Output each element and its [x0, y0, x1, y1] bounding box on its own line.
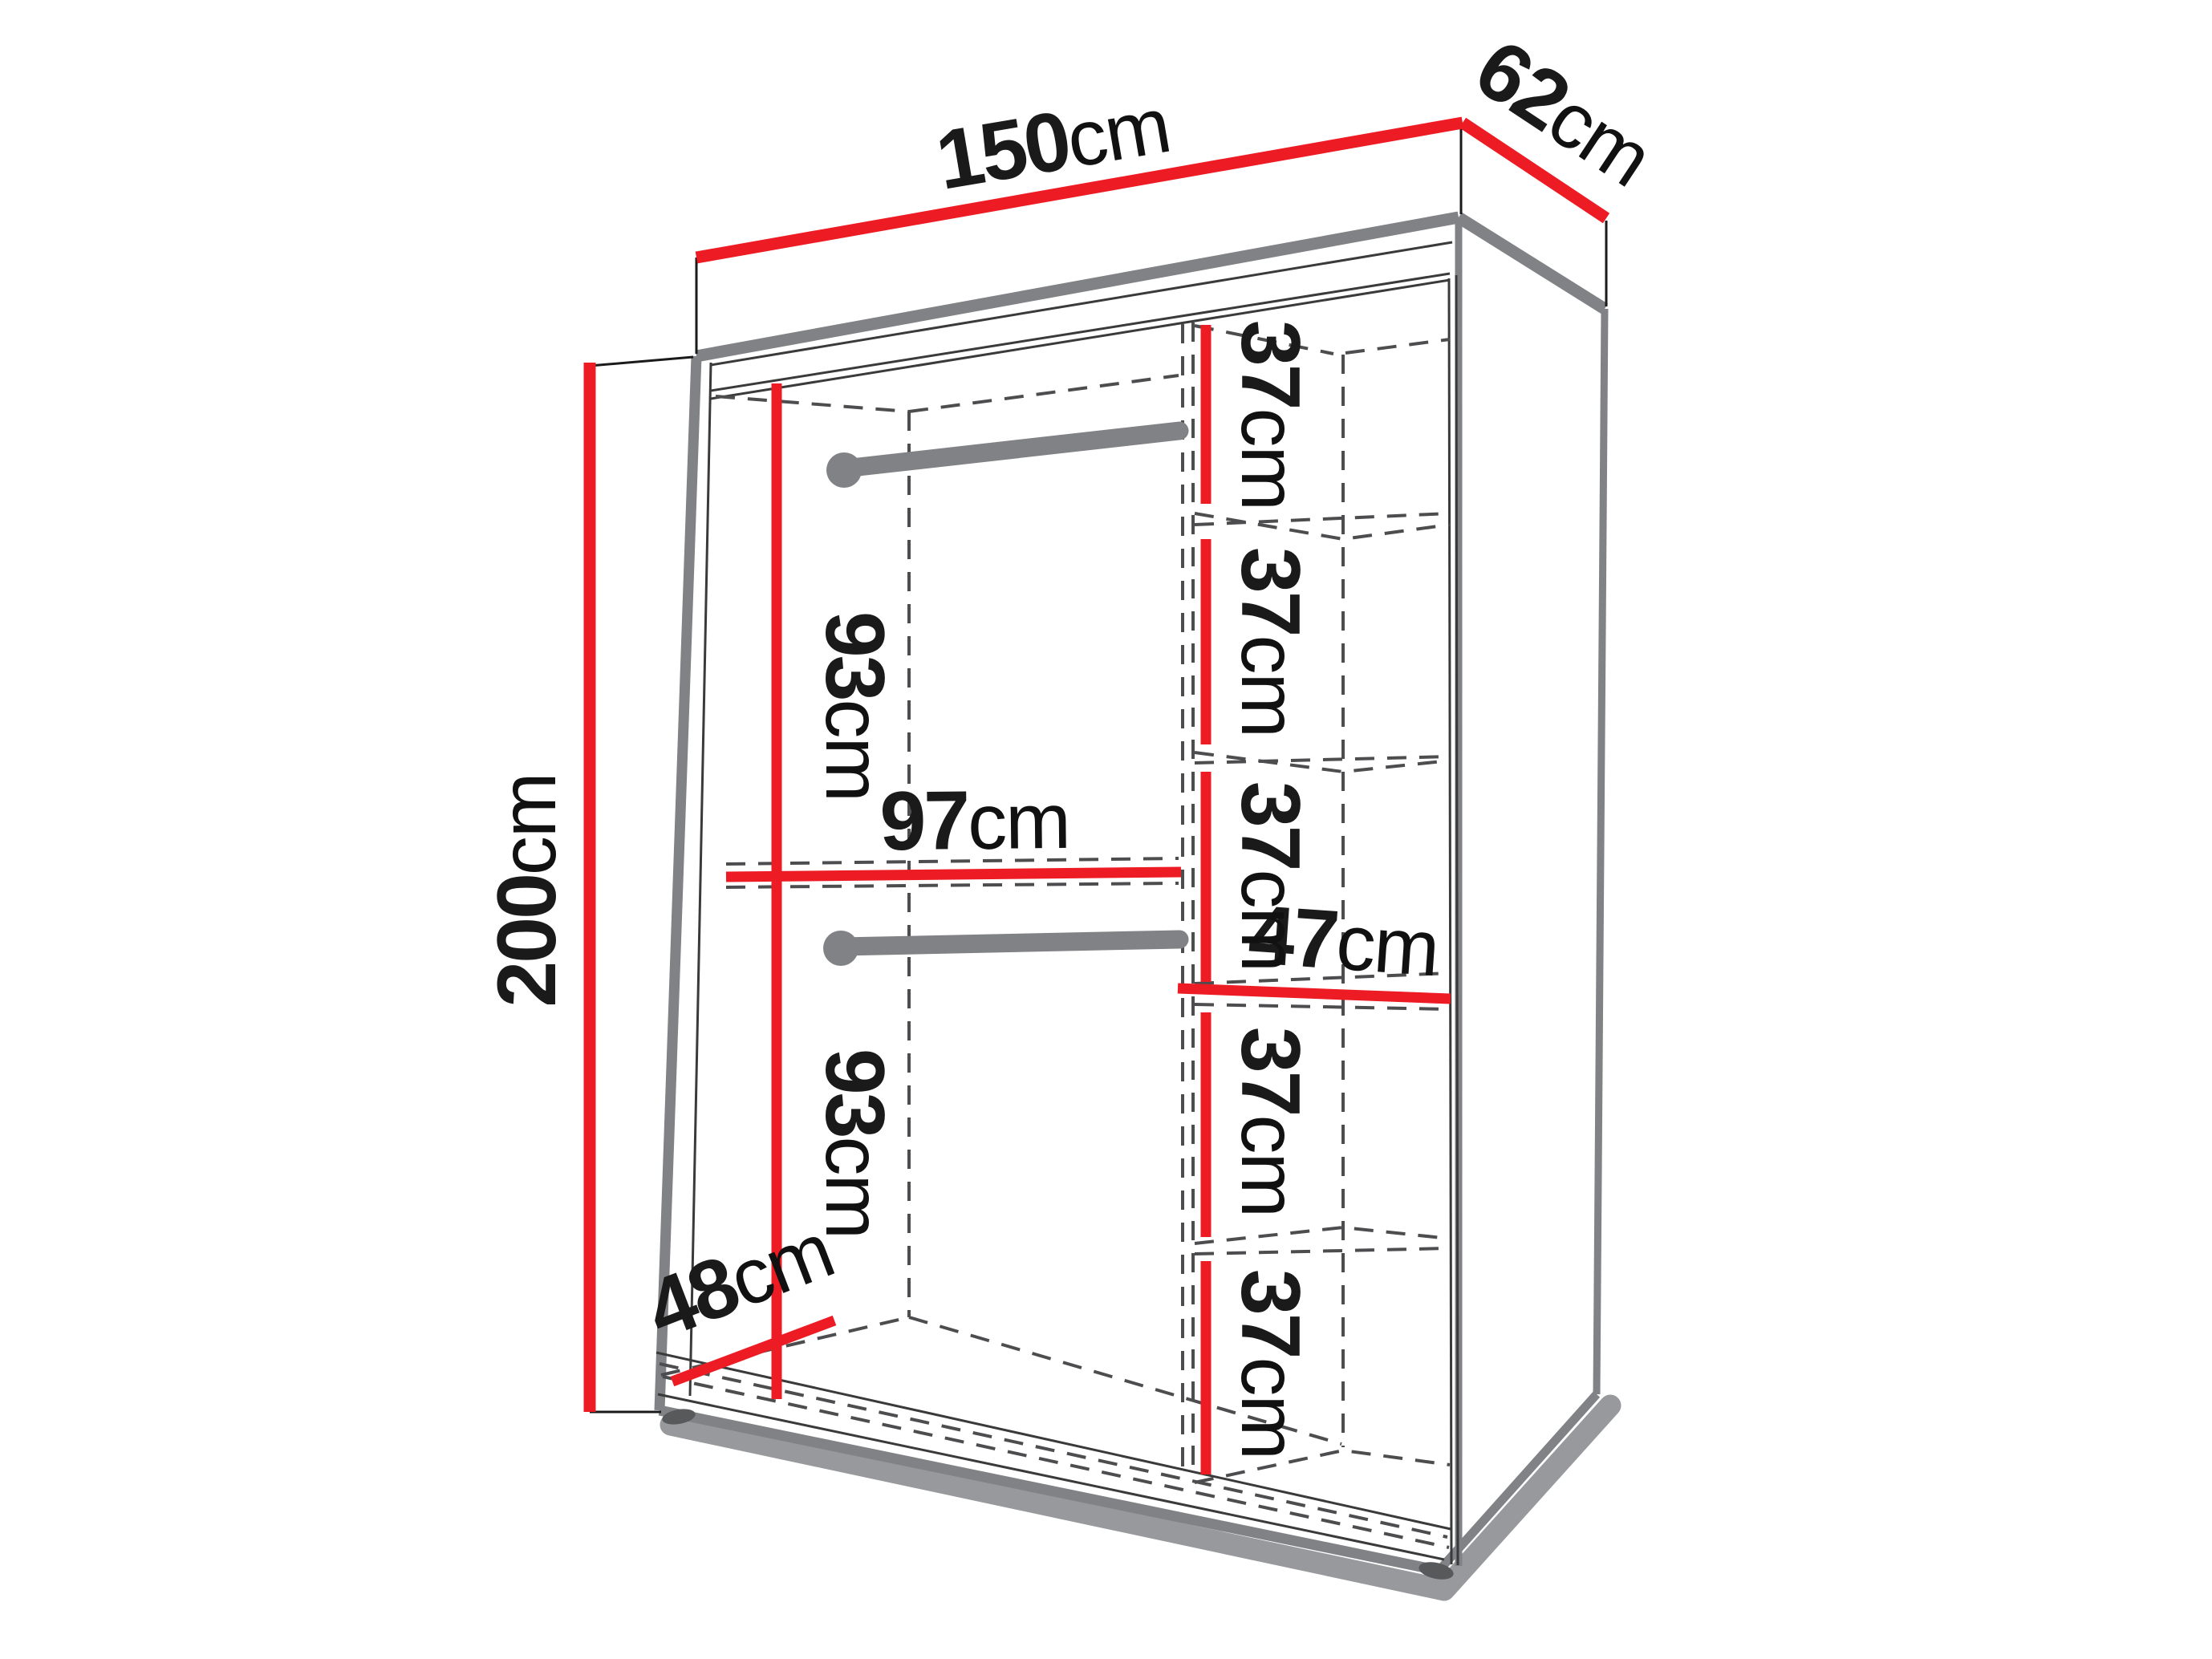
depth-dimension-label: 62cm	[1459, 22, 1669, 204]
shelf-gap-5-label: 37cm	[1224, 1269, 1317, 1458]
right-wall-inner-edge	[1449, 278, 1451, 1564]
upper-rail-height-label: 93cm	[808, 611, 901, 801]
wardrobe-shadow	[671, 1405, 1610, 1590]
extension-lines	[590, 124, 1606, 1412]
shelf-4-front-edge	[1195, 1248, 1450, 1254]
bottom-side-edge	[1440, 1394, 1597, 1569]
wardrobe-outline	[660, 217, 1605, 1571]
back-right-edge	[1597, 309, 1605, 1394]
opening-top-edge	[711, 242, 1452, 365]
diagram-canvas: 150cm 62cm 200cm 93cm 93cm 97cm 47cm 48c…	[0, 0, 2212, 1659]
shelf-3-front-edge	[1195, 1004, 1450, 1009]
hanging-rod-top	[844, 431, 1179, 468]
shelf-gap-3-label: 37cm	[1224, 781, 1317, 971]
hanging-rod-bottom-end-cap	[823, 931, 858, 966]
shelf-gap-4-label: 37cm	[1224, 1027, 1317, 1216]
shelf-gap-1-label: 37cm	[1224, 320, 1317, 509]
floor-hidden-edge-2	[663, 1377, 1449, 1547]
height-extension-top	[590, 357, 693, 366]
wardrobe-dimension-diagram: 150cm 62cm 200cm 93cm 93cm 97cm 47cm 48c…	[0, 0, 2212, 1659]
ceiling-back-edge	[909, 375, 1179, 412]
hanging-rod-top-end-cap	[826, 452, 862, 488]
lower-rail-height-label: 93cm	[808, 1049, 901, 1238]
column-ceiling-back-edge	[1345, 339, 1450, 353]
mid-shelf-front-edge	[726, 883, 1179, 887]
shelf-gap-2-label: 37cm	[1224, 547, 1317, 736]
top-side-edge	[1459, 217, 1605, 309]
dimension-line-rail-97	[726, 872, 1181, 877]
front-bottom-edge	[660, 1410, 1440, 1571]
shelf-4-back-edge	[1195, 1227, 1450, 1243]
rail-width-label: 97cm	[879, 773, 1070, 868]
hanging-rod-bottom	[841, 939, 1179, 947]
width-dimension-label: 150cm	[930, 77, 1175, 208]
plinth-top-edge	[658, 1394, 1444, 1560]
ceiling-depth-edge	[716, 396, 909, 412]
right-wall-front-edge	[1456, 275, 1458, 1565]
shelf-1-back-edge	[1195, 513, 1450, 539]
height-dimension-label: 200cm	[481, 773, 574, 1007]
